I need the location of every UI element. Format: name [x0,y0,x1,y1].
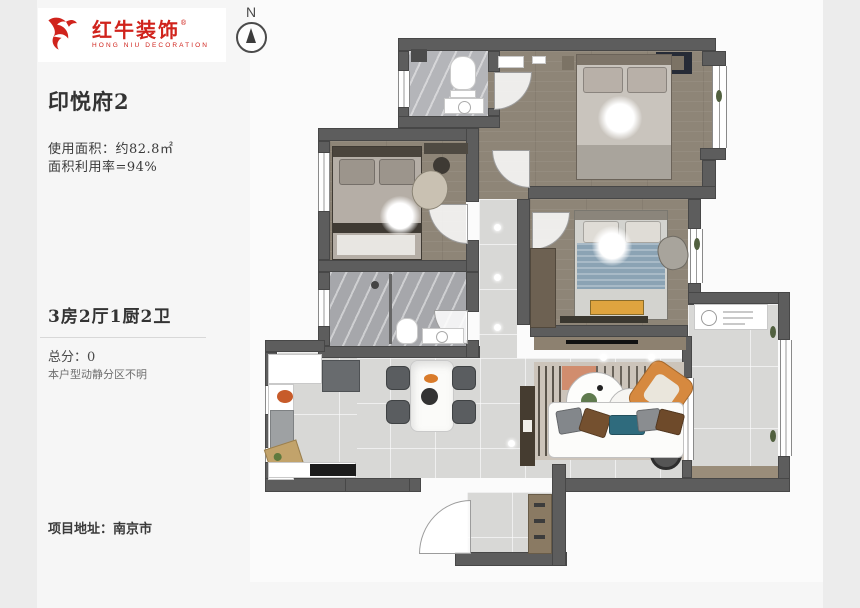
plant-icon [716,90,722,102]
label-lines [723,317,753,319]
registered-mark: ® [180,19,187,27]
ceiling-light [598,96,642,140]
desk [424,143,468,154]
wall [398,116,500,128]
dining-chair [452,400,476,424]
wall [466,272,479,312]
pillow [583,67,623,93]
wall [552,478,790,492]
dining-chair [386,366,410,390]
table-decor [597,385,603,391]
room-count-text: 3房2厅1厨2卫 [48,302,171,327]
window-bedroom-left [318,153,330,211]
usable-area-text: 使用面积：约82.8㎡ [48,138,173,157]
nightstand [672,56,684,70]
wall [318,346,480,358]
wall [455,552,567,566]
plan-title: 印悦府2 [48,86,130,116]
shoes [534,519,545,523]
wardrobe [530,248,556,328]
brand-name-en: HONG NIU DECORATION [92,43,209,50]
sink-basin [458,101,471,114]
downlight [648,354,655,361]
fridge [322,360,360,392]
wall [318,260,478,272]
washer-cabinet [694,304,768,330]
brand-logo: 红牛装饰® HONG NIU DECORATION [38,8,226,62]
wall [265,478,357,492]
window-balcony [780,340,792,456]
fruit-bowl [277,390,293,403]
wall [318,272,330,290]
sofa-pillow [655,408,686,436]
downlight [494,224,501,231]
wall [466,240,479,272]
wall [398,51,409,71]
headboard [575,211,667,220]
shoe-cabinet [528,494,552,554]
plant-icon [770,430,776,442]
toilet-icon [450,56,476,90]
window-bathroom-second [318,290,330,326]
shower-glass [389,274,392,344]
nightstand [562,56,574,70]
headboard [577,55,671,65]
fruit-plate [424,374,438,383]
toilet-icon [396,318,418,344]
dining-chair [452,366,476,390]
cooktop [310,464,356,476]
kitchen-counter [268,354,322,384]
label-lines [723,311,753,313]
wall [265,340,325,352]
pillow [379,159,415,185]
bench-yellow [590,300,644,315]
utilization-text: 面积利用率=94% [48,156,157,175]
toilet-tank [450,90,476,98]
tv-stand-bedroom [560,316,648,323]
brand-name-cn: 红牛装饰 [92,18,180,42]
project-address-text: 项目地址：南京市 [48,518,152,537]
vegetables [273,452,283,462]
wall [318,211,330,260]
washer-drum [701,310,717,326]
side-cabinet [520,386,535,466]
cabinet-item [523,420,532,432]
pillow [627,67,667,93]
sheet [337,235,415,255]
wall [700,148,726,160]
wall [466,128,479,202]
score-note-text: 本户型动静分区不明 [48,366,147,382]
divider-line [40,337,206,338]
plant-icon [694,238,700,250]
wall [688,292,790,304]
compass-north-label: N [240,4,262,20]
score-text: 总分：0 [48,346,95,365]
compass-arrow-icon [246,28,256,43]
downlight [508,440,515,447]
window-master-bay [712,66,727,148]
plant-icon [770,326,776,338]
wall [682,460,692,478]
ceiling-light [592,226,632,266]
ceiling-light [380,196,420,236]
bull-icon [44,14,88,56]
master-desk [498,56,524,68]
wall [318,141,330,153]
wall [528,186,716,199]
sofa [548,402,684,458]
window-bathroom-top [398,71,410,107]
dining-chair [386,400,410,424]
wall [552,464,566,566]
sink-basin [436,331,448,343]
wall [778,292,790,340]
teapot [421,388,438,405]
label-lines [723,323,745,325]
tv-icon [566,340,638,344]
page: { "logo": { "brand_cn": "红牛装饰", "brand_e… [0,0,860,608]
downlight [494,274,501,281]
sofa-pillow [578,407,612,438]
wall [318,128,479,141]
shoes [534,503,545,507]
wall [517,199,530,325]
blanket [577,145,671,179]
balcony-threshold [688,466,778,478]
wall [398,38,716,51]
wall [688,199,701,229]
bath-mat [411,49,427,62]
pillow [339,159,375,185]
wall [702,51,726,66]
balcony [688,304,778,478]
shoes [534,535,545,539]
compass-icon [236,22,267,53]
shower-head-icon [371,281,379,289]
shelf [532,56,546,64]
downlight [494,324,501,331]
headboard [333,147,421,157]
downlight [600,354,607,361]
wall [409,478,421,492]
